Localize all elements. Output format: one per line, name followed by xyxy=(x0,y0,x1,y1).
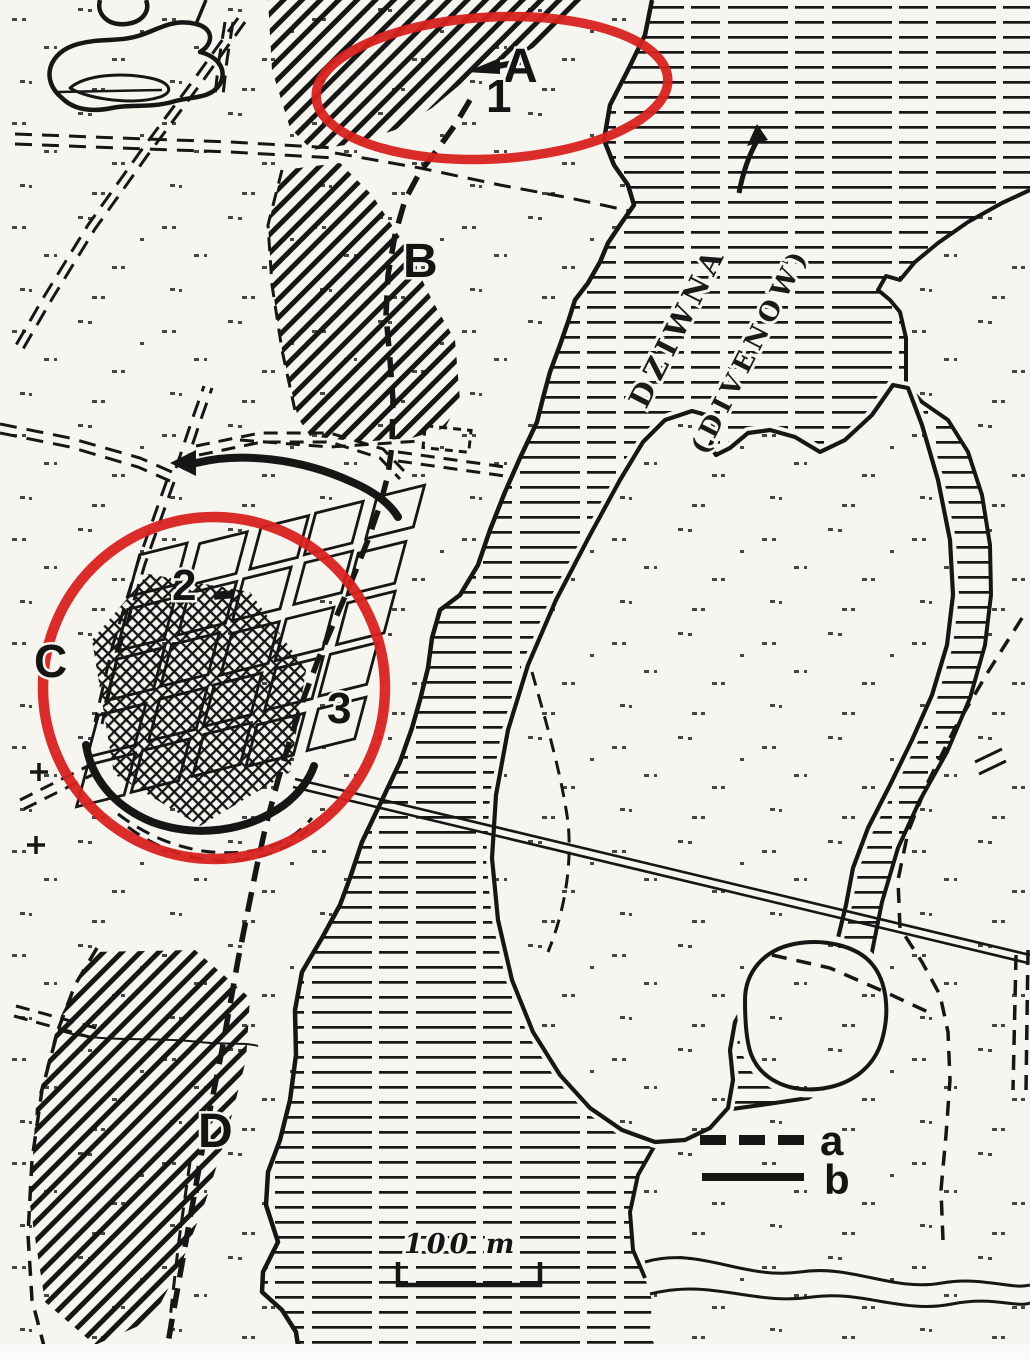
scanned-site-map: DZIWNA (DIVENOW) a b 100 m A 1 B C 2 3 D xyxy=(0,0,1030,1359)
label-area-d: D xyxy=(198,1105,233,1158)
label-site-3: 3 xyxy=(327,684,351,733)
legend-label-b: b xyxy=(824,1156,850,1203)
site-map-canvas: DZIWNA (DIVENOW) a b 100 m A 1 B C 2 3 D xyxy=(0,0,1030,1359)
label-site-2: 2 xyxy=(172,561,196,610)
scan-margin xyxy=(0,1344,1030,1359)
label-area-c: C xyxy=(34,635,67,687)
label-site-1: 1 xyxy=(486,70,512,122)
label-area-b: B xyxy=(403,235,438,288)
scale-label: 100 m xyxy=(404,1229,518,1260)
island-small xyxy=(745,942,886,1089)
site-2-tick xyxy=(214,590,235,599)
